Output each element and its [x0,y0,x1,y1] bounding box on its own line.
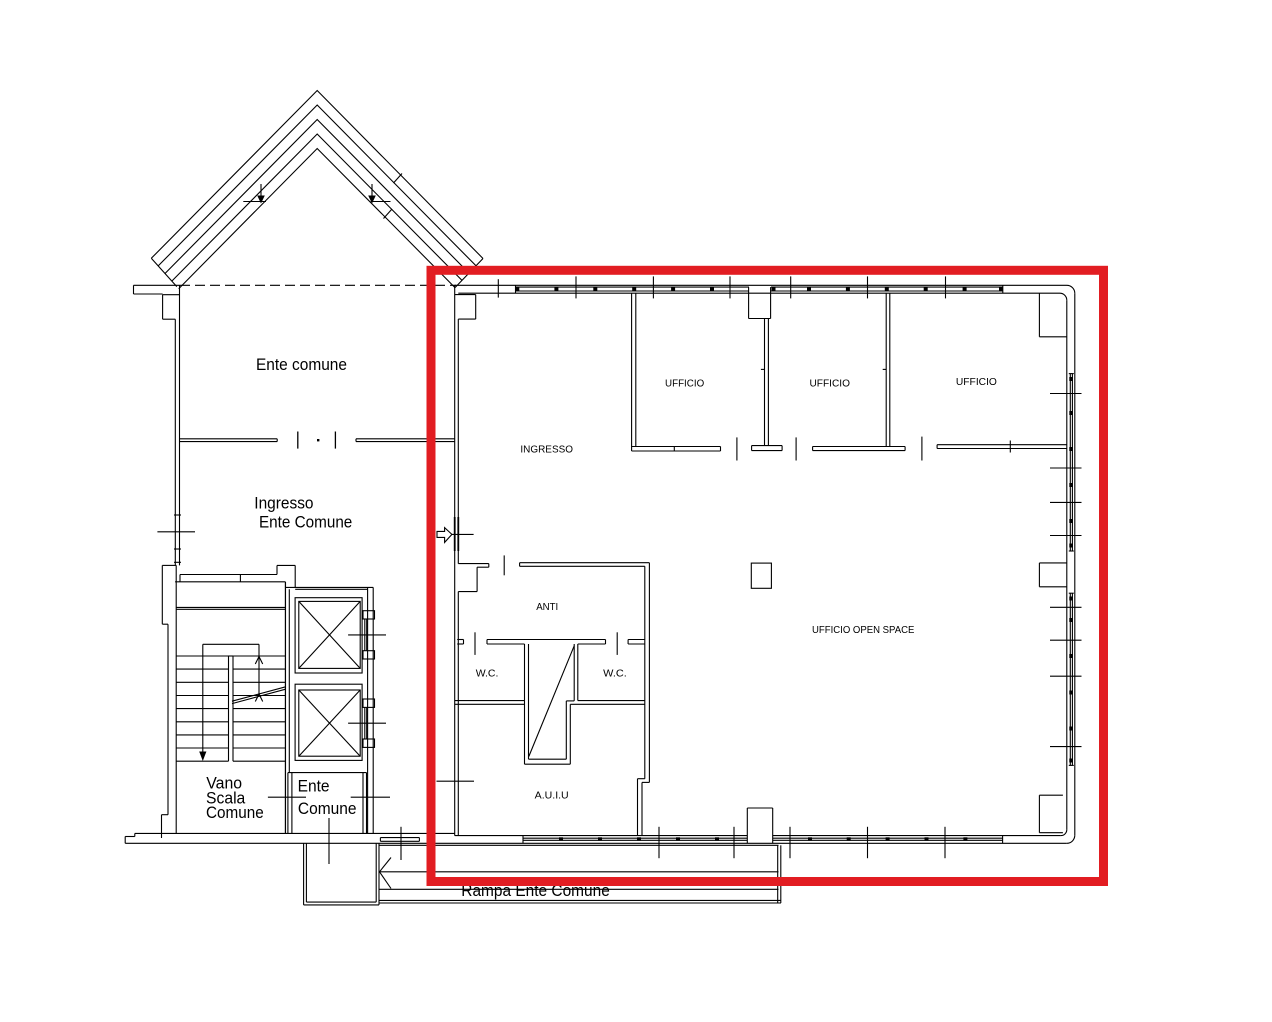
svg-text:W.C.: W.C. [476,668,499,680]
svg-text:ANTI: ANTI [536,601,558,613]
svg-text:Comune: Comune [298,799,357,818]
svg-text:W.C.: W.C. [603,668,627,680]
svg-text:Ente: Ente [298,777,330,796]
svg-text:Ente Comune: Ente Comune [259,513,352,532]
svg-text:UFFICIO: UFFICIO [810,378,851,390]
svg-text:INGRESSO: INGRESSO [520,445,573,456]
svg-text:Ingresso: Ingresso [254,494,313,513]
svg-text:UFFICIO: UFFICIO [665,378,704,390]
svg-text:UFFICIO OPEN SPACE: UFFICIO OPEN SPACE [812,624,914,636]
svg-text:Comune: Comune [206,803,264,822]
svg-text:Ente comune: Ente comune [256,355,347,374]
svg-text:A.U.I.U: A.U.I.U [535,790,569,801]
svg-text:UFFICIO: UFFICIO [956,376,997,388]
